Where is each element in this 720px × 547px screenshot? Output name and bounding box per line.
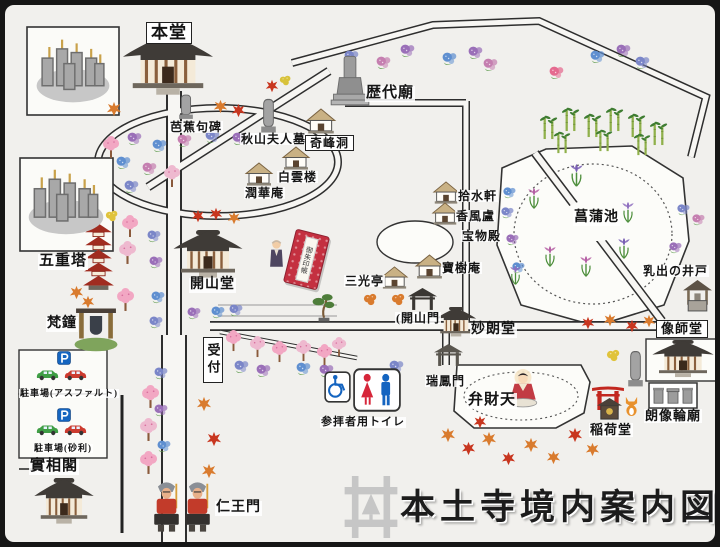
goshuin-book-label: 御朱印帳	[295, 236, 319, 283]
temple-grounds-map: 本堂歴代廟芭蕉句碑秋山夫人墓奇峰洞白雲楼潤華庵拾水軒香風盧宝物殿菖蒲池五重塔開山…	[5, 5, 715, 542]
screenshot-frame: 本堂歴代廟芭蕉句碑秋山夫人墓奇峰洞白雲楼潤華庵拾水軒香風盧宝物殿菖蒲池五重塔開山…	[0, 0, 720, 547]
map-base-drawing	[5, 5, 715, 542]
